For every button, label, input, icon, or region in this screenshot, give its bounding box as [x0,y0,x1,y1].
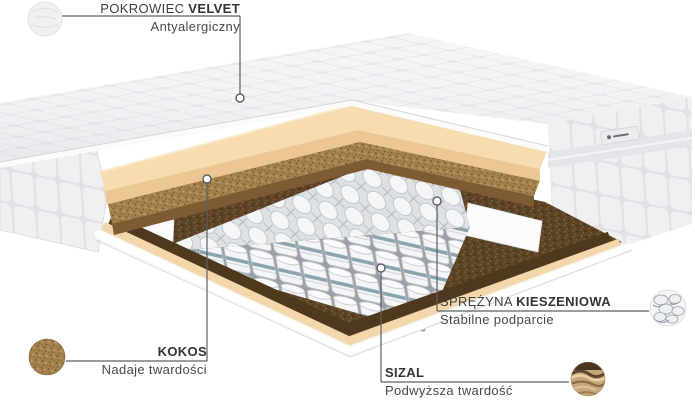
label-cover-description: Antyalergiczny [0,19,240,34]
label-sizal-title: SIZAL [385,365,513,380]
label-cover-title: POKROWIEC VELVET [0,1,240,16]
label-kokos-description: Nadaje twardości [0,362,207,377]
label-sprezyna-description: Stabilne podparcie [440,312,611,327]
mattress-illustration [0,0,695,403]
label-sprezyna-emphasis: KIESZENIOWA [516,294,611,309]
label-cover: POKROWIEC VELVET Antyalergiczny [0,1,240,34]
marker-sprezyna [433,197,441,205]
label-sprezyna-title: SPRĘŻYNA KIESZENIOWA [440,294,611,309]
label-cover-prefix: POKROWIEC [100,1,184,16]
label-kokos-title: KOKOS [0,344,207,359]
label-kokos-emphasis: KOKOS [158,344,207,359]
label-kokos: KOKOS Nadaje twardości [0,344,207,377]
label-sprezyna-prefix: SPRĘŻYNA [440,294,512,309]
label-sizal: SIZAL Podwyższa twardość [385,365,513,398]
label-cover-emphasis: VELVET [188,1,240,16]
label-sizal-description: Podwyższa twardość [385,383,513,398]
marker-sizal [377,264,385,272]
mattress-diagram: POKROWIEC VELVET Antyalergiczny KOKOS Na… [0,0,695,403]
sizal-swatch [570,361,606,396]
marker-kokos [203,175,211,183]
marker-cover [236,94,244,102]
label-sizal-emphasis: SIZAL [385,365,424,380]
label-sprezyna: SPRĘŻYNA KIESZENIOWA Stabilne podparcie [440,294,611,327]
sprezyna-swatch [650,290,686,326]
